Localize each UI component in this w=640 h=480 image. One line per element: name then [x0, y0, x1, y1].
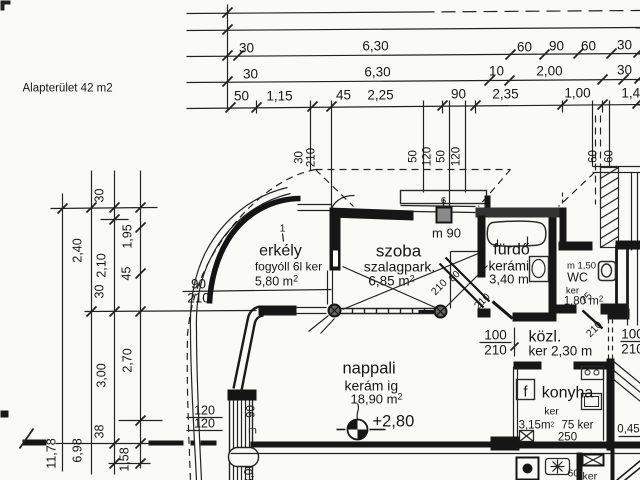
svg-text:120: 120	[451, 147, 463, 166]
svg-text:2,10: 2,10	[95, 253, 109, 277]
svg-text:100: 100	[484, 328, 507, 343]
svg-text:1,58: 1,58	[118, 447, 132, 471]
svg-text:szalagpark.: szalagpark.	[364, 259, 436, 275]
svg-text:30: 30	[243, 67, 258, 82]
svg-text:30: 30	[617, 63, 632, 78]
svg-text:50: 50	[436, 150, 448, 163]
svg-text:30: 30	[617, 38, 632, 53]
svg-text:90: 90	[549, 39, 564, 54]
svg-text:60: 60	[588, 150, 600, 163]
svg-text:210: 210	[306, 148, 318, 167]
svg-text:210: 210	[621, 342, 640, 357]
svg-text:120: 120	[422, 147, 434, 166]
svg-text:30: 30	[239, 41, 254, 56]
svg-text:konyha: konyha	[542, 385, 594, 402]
svg-text:45: 45	[120, 267, 134, 281]
svg-text:60: 60	[604, 150, 616, 163]
svg-text:120: 120	[194, 404, 215, 418]
svg-text:50: 50	[234, 89, 249, 104]
svg-text:fürdő: fürdő	[493, 242, 530, 259]
svg-text:30: 30	[294, 151, 306, 164]
svg-text:10: 10	[489, 64, 504, 79]
svg-text:1,00: 1,00	[564, 86, 590, 101]
svg-text:ker: ker	[583, 471, 598, 480]
svg-text:1: 1	[280, 223, 286, 235]
svg-text:6,30: 6,30	[362, 39, 388, 54]
svg-text:90: 90	[451, 87, 466, 102]
svg-text:2,00: 2,00	[536, 64, 562, 79]
svg-text:ker: ker	[544, 406, 559, 418]
svg-text:ker 2,30 m: ker 2,30 m	[529, 344, 593, 359]
svg-text:60: 60	[517, 40, 532, 55]
svg-text:+2,80: +2,80	[373, 413, 415, 431]
svg-text:1,95: 1,95	[121, 224, 135, 248]
svg-text:30: 30	[93, 285, 107, 299]
svg-text:Alapterület 42 m2: Alapterület 42 m2	[23, 83, 113, 95]
svg-text:1,15: 1,15	[266, 89, 292, 104]
svg-text:2,70: 2,70	[121, 348, 135, 372]
svg-text:5,80 m2: 5,80 m2	[255, 274, 298, 289]
svg-text:3,40 m2: 3,40 m2	[489, 272, 534, 287]
svg-text:2,40: 2,40	[71, 238, 85, 262]
svg-text:1,40: 1,40	[621, 86, 640, 101]
svg-text:50: 50	[408, 150, 420, 163]
svg-text:2,35: 2,35	[492, 87, 518, 102]
svg-text:30: 30	[93, 189, 107, 203]
svg-text:erkély: erkély	[259, 243, 302, 260]
svg-text:6: 6	[441, 196, 446, 207]
svg-text:6,98: 6,98	[71, 438, 85, 462]
svg-text:3,00: 3,00	[95, 363, 109, 387]
svg-text:6,30: 6,30	[364, 65, 390, 80]
svg-text:100: 100	[621, 327, 640, 342]
svg-text:0,45: 0,45	[617, 424, 639, 436]
svg-text:1,80 m2: 1,80 m2	[564, 295, 604, 308]
svg-text:2,25: 2,25	[367, 88, 393, 103]
svg-text:WC: WC	[567, 271, 588, 285]
svg-text:45: 45	[336, 88, 351, 103]
svg-text:210: 210	[484, 343, 507, 358]
svg-text:120: 120	[194, 417, 215, 431]
svg-text:60: 60	[581, 39, 596, 54]
svg-text:fogyóll 6l ker: fogyóll 6l ker	[255, 260, 322, 274]
svg-text:m 90: m 90	[432, 226, 461, 241]
svg-text:38: 38	[93, 425, 107, 439]
svg-text:nappali: nappali	[343, 360, 396, 378]
svg-text:3,15m2: 3,15m2	[519, 420, 555, 432]
svg-text:90: 90	[246, 405, 258, 418]
svg-text:11,78: 11,78	[45, 438, 59, 468]
svg-text:75 ker: 75 ker	[562, 420, 594, 432]
